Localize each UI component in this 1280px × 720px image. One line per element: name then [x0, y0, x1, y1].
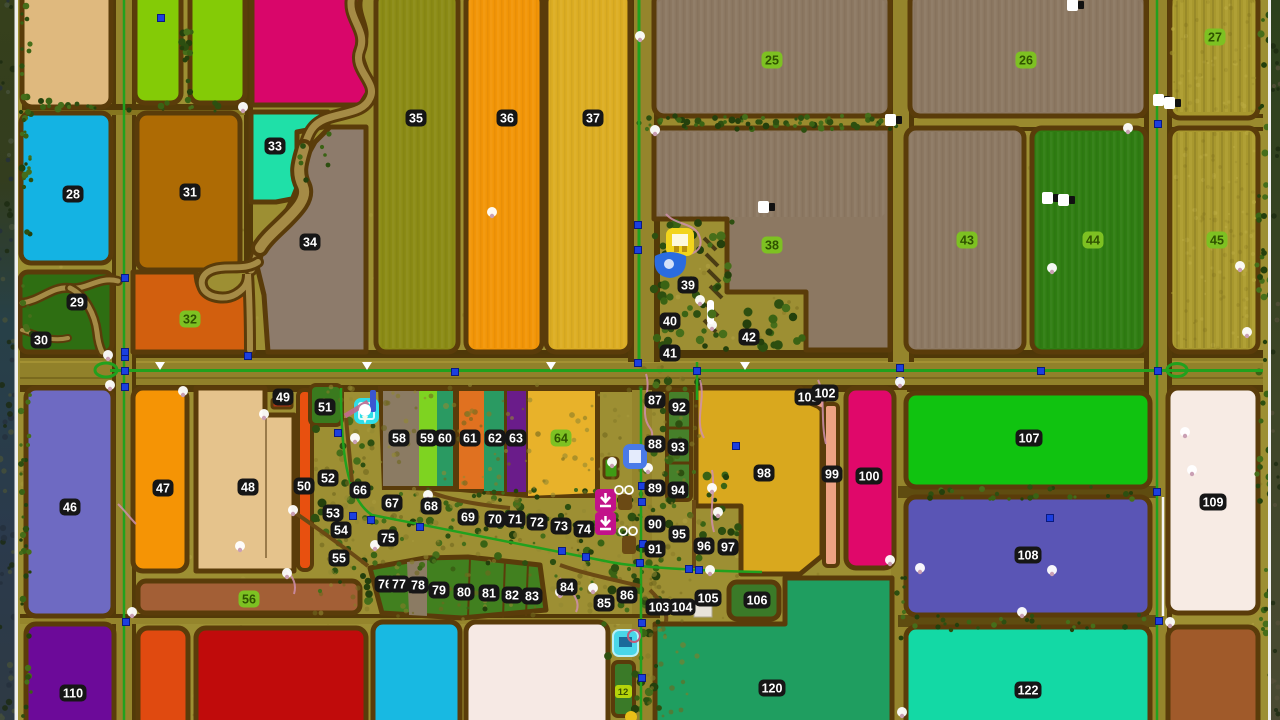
svg-text:47: 47 — [156, 482, 170, 496]
svg-text:33: 33 — [268, 140, 282, 154]
svg-text:79: 79 — [432, 584, 446, 598]
svg-text:46: 46 — [63, 501, 77, 515]
svg-text:92: 92 — [672, 401, 686, 415]
svg-text:96: 96 — [697, 540, 711, 554]
svg-text:75: 75 — [381, 532, 395, 546]
svg-text:97: 97 — [721, 541, 735, 555]
svg-text:44: 44 — [1086, 234, 1100, 248]
svg-text:53: 53 — [326, 507, 340, 521]
svg-text:39: 39 — [681, 279, 695, 293]
svg-text:78: 78 — [411, 579, 425, 593]
svg-text:77: 77 — [392, 578, 406, 592]
svg-text:94: 94 — [671, 484, 685, 498]
svg-text:64: 64 — [554, 432, 568, 446]
svg-text:102: 102 — [815, 387, 836, 401]
svg-text:38: 38 — [765, 239, 779, 253]
svg-text:37: 37 — [586, 112, 600, 126]
svg-text:30: 30 — [34, 334, 48, 348]
svg-text:91: 91 — [648, 543, 662, 557]
svg-text:34: 34 — [303, 236, 317, 250]
svg-text:107: 107 — [1019, 432, 1040, 446]
svg-text:27: 27 — [1208, 31, 1222, 45]
svg-text:95: 95 — [672, 528, 686, 542]
svg-text:99: 99 — [825, 468, 839, 482]
svg-text:58: 58 — [392, 432, 406, 446]
svg-text:87: 87 — [648, 394, 662, 408]
svg-text:56: 56 — [242, 593, 256, 607]
svg-text:29: 29 — [70, 296, 84, 310]
svg-text:104: 104 — [672, 601, 693, 615]
svg-text:72: 72 — [530, 516, 544, 530]
svg-text:68: 68 — [424, 500, 438, 514]
svg-text:31: 31 — [183, 186, 197, 200]
svg-text:100: 100 — [859, 470, 880, 484]
svg-text:35: 35 — [409, 112, 423, 126]
svg-text:89: 89 — [648, 482, 662, 496]
svg-text:86: 86 — [620, 589, 634, 603]
svg-text:90: 90 — [648, 518, 662, 532]
svg-text:45: 45 — [1210, 234, 1224, 248]
svg-text:81: 81 — [482, 587, 496, 601]
svg-text:82: 82 — [505, 589, 519, 603]
svg-text:120: 120 — [762, 682, 783, 696]
svg-text:71: 71 — [508, 513, 522, 527]
svg-text:69: 69 — [461, 511, 475, 525]
svg-text:88: 88 — [648, 438, 662, 452]
svg-text:108: 108 — [1018, 549, 1039, 563]
svg-text:36: 36 — [500, 112, 514, 126]
svg-text:62: 62 — [488, 432, 502, 446]
svg-text:42: 42 — [742, 331, 756, 345]
svg-text:52: 52 — [321, 472, 335, 486]
svg-text:41: 41 — [663, 347, 677, 361]
svg-text:40: 40 — [663, 315, 677, 329]
svg-text:50: 50 — [297, 480, 311, 494]
svg-text:32: 32 — [183, 313, 197, 327]
svg-text:48: 48 — [241, 481, 255, 495]
svg-text:67: 67 — [385, 497, 399, 511]
svg-text:60: 60 — [438, 432, 452, 446]
svg-text:73: 73 — [554, 520, 568, 534]
svg-text:59: 59 — [420, 432, 434, 446]
svg-text:12: 12 — [618, 687, 629, 698]
svg-text:106: 106 — [747, 594, 768, 608]
svg-text:55: 55 — [332, 552, 346, 566]
svg-text:54: 54 — [334, 524, 348, 538]
svg-text:83: 83 — [525, 590, 539, 604]
svg-text:25: 25 — [765, 54, 779, 68]
svg-text:103: 103 — [649, 601, 670, 615]
svg-text:84: 84 — [560, 581, 574, 595]
svg-text:61: 61 — [463, 432, 477, 446]
svg-text:105: 105 — [698, 592, 719, 606]
svg-text:66: 66 — [353, 484, 367, 498]
svg-text:93: 93 — [671, 441, 685, 455]
svg-text:49: 49 — [276, 391, 290, 405]
svg-text:51: 51 — [318, 401, 332, 415]
svg-text:122: 122 — [1018, 684, 1039, 698]
svg-text:28: 28 — [66, 188, 80, 202]
svg-text:63: 63 — [509, 432, 523, 446]
svg-text:74: 74 — [577, 523, 591, 537]
svg-text:43: 43 — [960, 234, 974, 248]
svg-text:110: 110 — [63, 687, 83, 701]
svg-text:70: 70 — [488, 513, 502, 527]
svg-text:80: 80 — [457, 586, 471, 600]
svg-text:85: 85 — [597, 597, 611, 611]
svg-text:109: 109 — [1203, 496, 1224, 510]
svg-text:26: 26 — [1019, 54, 1033, 68]
svg-text:98: 98 — [757, 467, 771, 481]
